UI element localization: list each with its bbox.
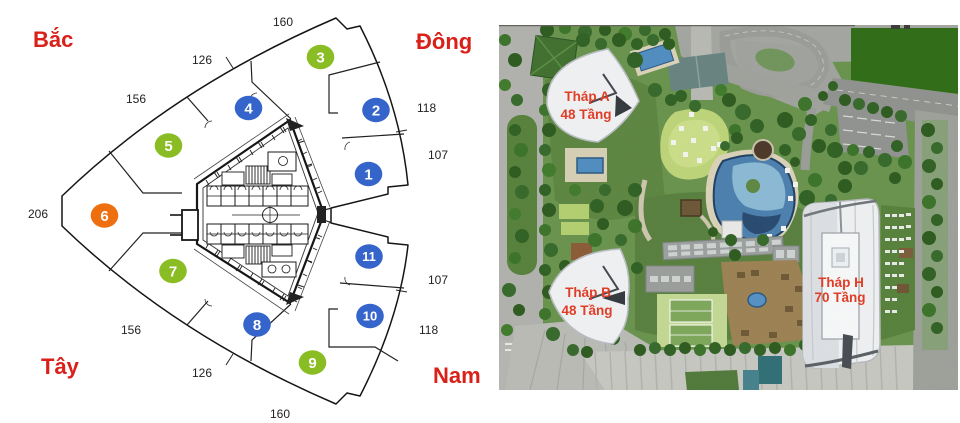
- svg-text:126: 126: [192, 366, 212, 380]
- svg-text:156: 156: [121, 323, 141, 337]
- svg-text:2: 2: [372, 103, 380, 120]
- svg-text:107: 107: [428, 273, 448, 287]
- svg-text:160: 160: [270, 407, 290, 421]
- svg-text:9: 9: [308, 355, 316, 372]
- svg-text:206: 206: [28, 207, 48, 221]
- svg-text:160: 160: [273, 15, 293, 29]
- svg-text:Nam: Nam: [433, 363, 481, 388]
- svg-text:156: 156: [126, 92, 146, 106]
- svg-text:118: 118: [417, 101, 436, 115]
- svg-text:126: 126: [192, 53, 212, 67]
- svg-text:107: 107: [428, 148, 448, 162]
- svg-text:Tây: Tây: [41, 354, 80, 379]
- svg-text:8: 8: [253, 317, 261, 334]
- svg-text:5: 5: [164, 138, 172, 155]
- svg-text:3: 3: [316, 50, 324, 67]
- svg-text:7: 7: [169, 264, 177, 281]
- svg-text:10: 10: [363, 309, 377, 324]
- svg-text:118: 118: [419, 323, 438, 337]
- svg-text:11: 11: [362, 249, 376, 264]
- svg-text:Bắc: Bắc: [33, 27, 73, 52]
- svg-text:4: 4: [244, 101, 253, 118]
- svg-text:6: 6: [100, 208, 108, 225]
- svg-text:1: 1: [364, 167, 372, 184]
- svg-text:Đông: Đông: [416, 29, 472, 54]
